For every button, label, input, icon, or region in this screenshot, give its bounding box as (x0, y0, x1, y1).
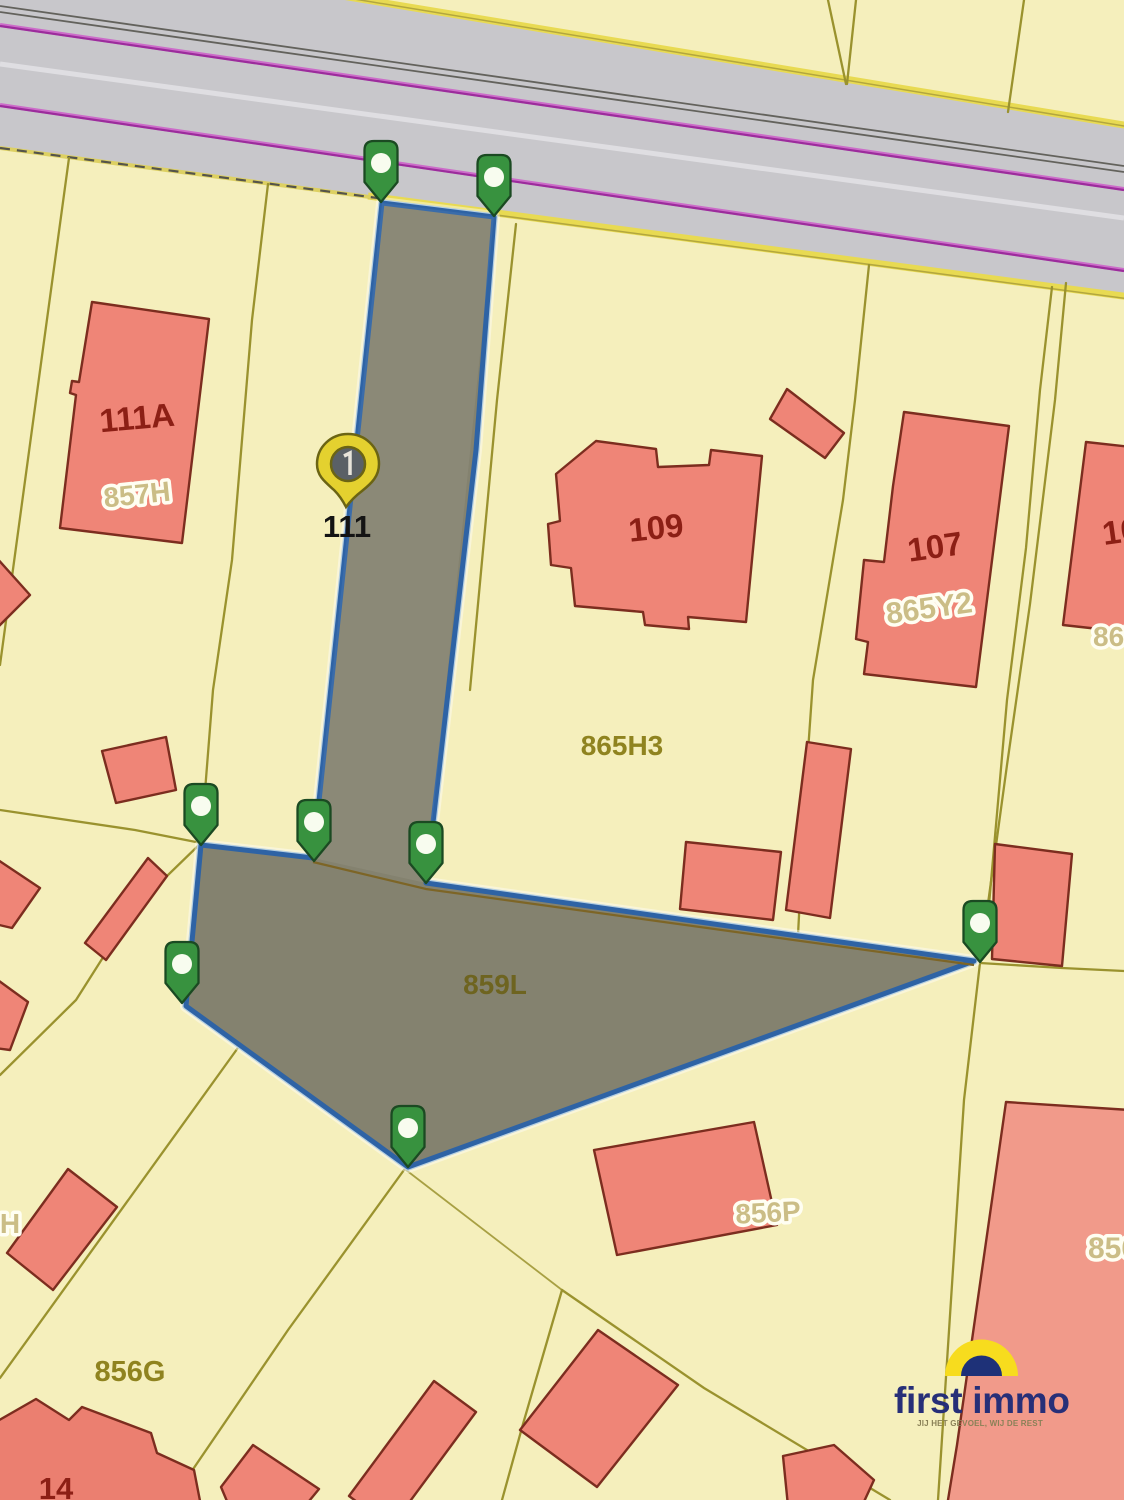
svg-text:856G: 856G (95, 1356, 166, 1388)
svg-text:107: 107 (905, 524, 965, 568)
svg-text:856P: 856P (735, 1195, 802, 1229)
svg-text:10: 10 (1100, 510, 1124, 552)
svg-text:H: H (0, 1208, 20, 1239)
svg-text:865H3: 865H3 (581, 730, 664, 761)
svg-text:111A: 111A (98, 396, 176, 439)
svg-text:JIJ HET GEVOEL, WIJ DE REST: JIJ HET GEVOEL, WIJ DE REST (917, 1419, 1043, 1428)
svg-text:109: 109 (627, 506, 686, 549)
svg-text:14: 14 (39, 1471, 74, 1500)
svg-text:111: 111 (323, 509, 371, 544)
svg-text:856: 856 (1088, 1232, 1124, 1265)
svg-text:859L: 859L (463, 969, 527, 1000)
svg-text:first immo: first immo (894, 1380, 1070, 1421)
svg-text:865: 865 (1093, 621, 1124, 652)
